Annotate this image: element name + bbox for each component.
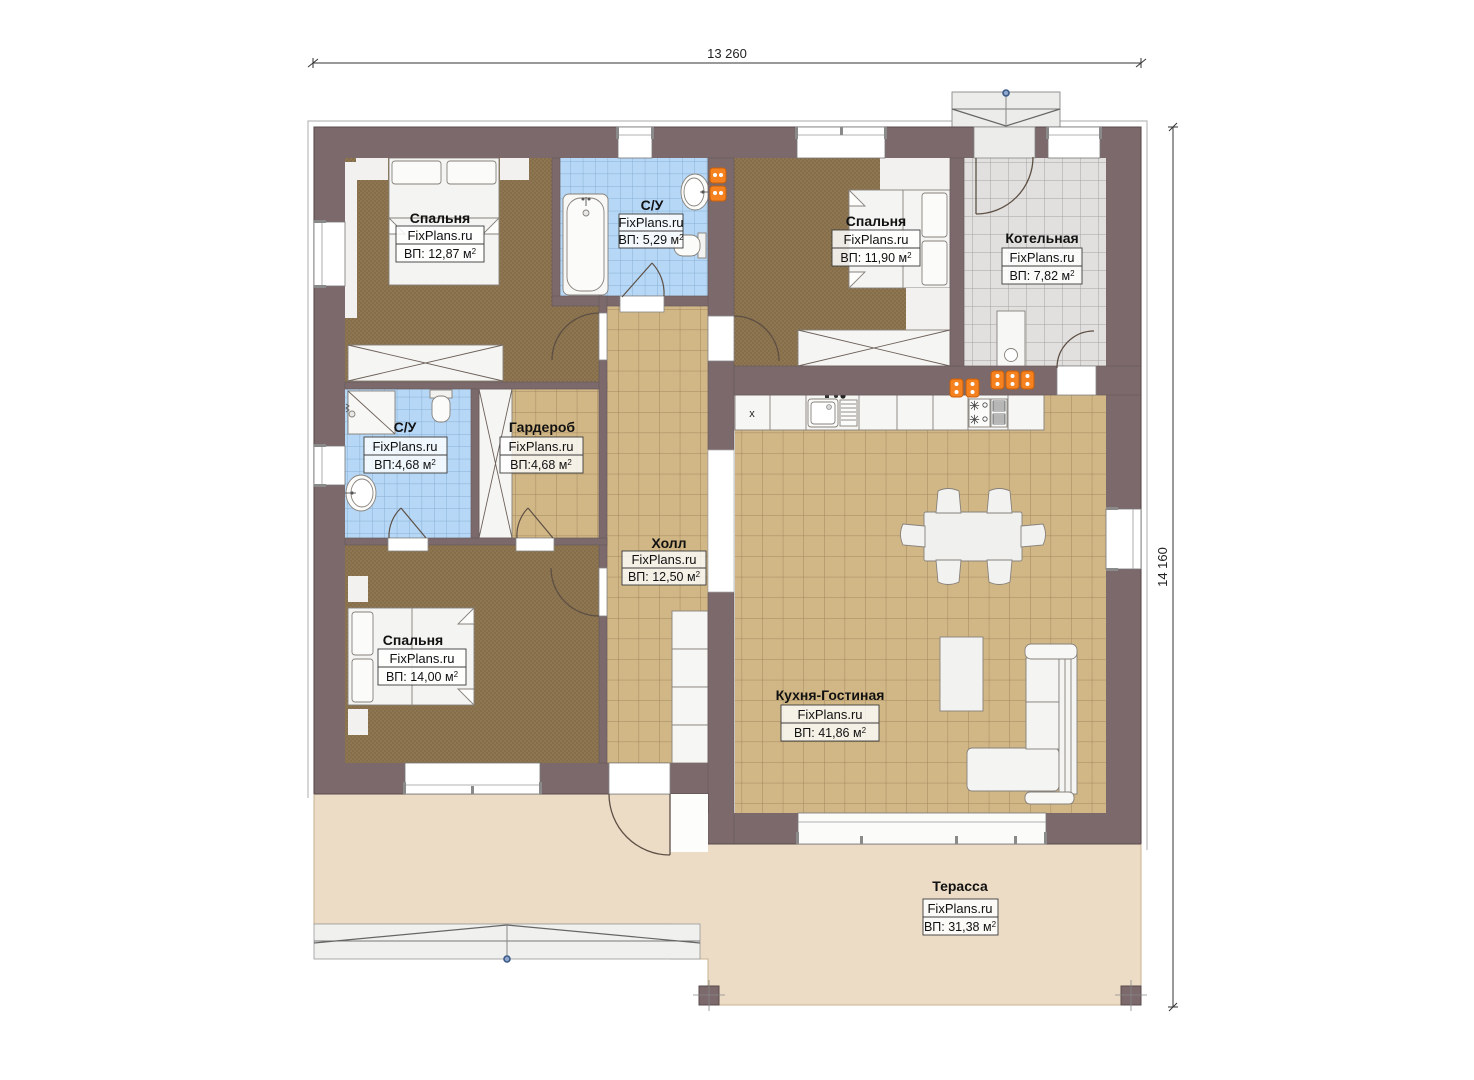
svg-text:Спальня: Спальня <box>383 632 443 648</box>
svg-text:Гардероб: Гардероб <box>509 419 576 435</box>
svg-text:Кухня-Гостиная: Кухня-Гостиная <box>776 687 885 703</box>
svg-text:ВП: 12,87 м2: ВП: 12,87 м2 <box>404 247 477 261</box>
svg-text:FixPlans.ru: FixPlans.ru <box>508 439 573 454</box>
svg-text:FixPlans.ru: FixPlans.ru <box>927 901 992 916</box>
svg-text:Спальня: Спальня <box>410 210 470 226</box>
svg-text:ВП:4,68 м2: ВП:4,68 м2 <box>510 458 572 472</box>
svg-text:Терасса: Терасса <box>932 878 988 894</box>
svg-text:Котельная: Котельная <box>1005 230 1078 246</box>
svg-text:14 160: 14 160 <box>1155 547 1170 587</box>
svg-text:ВП: 14,00 м2: ВП: 14,00 м2 <box>386 670 459 684</box>
svg-text:ВП:4,68 м2: ВП:4,68 м2 <box>374 458 436 472</box>
svg-text:ВП: 41,86 м2: ВП: 41,86 м2 <box>794 726 867 740</box>
svg-text:FixPlans.ru: FixPlans.ru <box>389 651 454 666</box>
svg-text:С/У: С/У <box>394 419 417 435</box>
svg-text:FixPlans.ru: FixPlans.ru <box>407 228 472 243</box>
svg-text:FixPlans.ru: FixPlans.ru <box>631 552 696 567</box>
svg-text:x: x <box>749 408 755 420</box>
svg-text:FixPlans.ru: FixPlans.ru <box>843 232 908 247</box>
svg-text:FixPlans.ru: FixPlans.ru <box>1009 250 1074 265</box>
svg-text:ВП: 31,38 м2: ВП: 31,38 м2 <box>924 920 997 934</box>
svg-text:ВП: 5,29 м2: ВП: 5,29 м2 <box>618 233 684 247</box>
svg-text:Спальня: Спальня <box>846 213 906 229</box>
svg-text:13 260: 13 260 <box>707 46 747 61</box>
svg-text:FixPlans.ru: FixPlans.ru <box>797 707 862 722</box>
svg-text:С/У: С/У <box>641 197 664 213</box>
svg-text:ВП: 12,50 м2: ВП: 12,50 м2 <box>628 570 701 584</box>
svg-text:FixPlans.ru: FixPlans.ru <box>618 215 683 230</box>
svg-text:Холл: Холл <box>651 535 686 551</box>
svg-text:ВП: 7,82 м2: ВП: 7,82 м2 <box>1009 269 1075 283</box>
svg-text:ВП: 11,90 м2: ВП: 11,90 м2 <box>840 251 912 265</box>
svg-text:FixPlans.ru: FixPlans.ru <box>372 439 437 454</box>
